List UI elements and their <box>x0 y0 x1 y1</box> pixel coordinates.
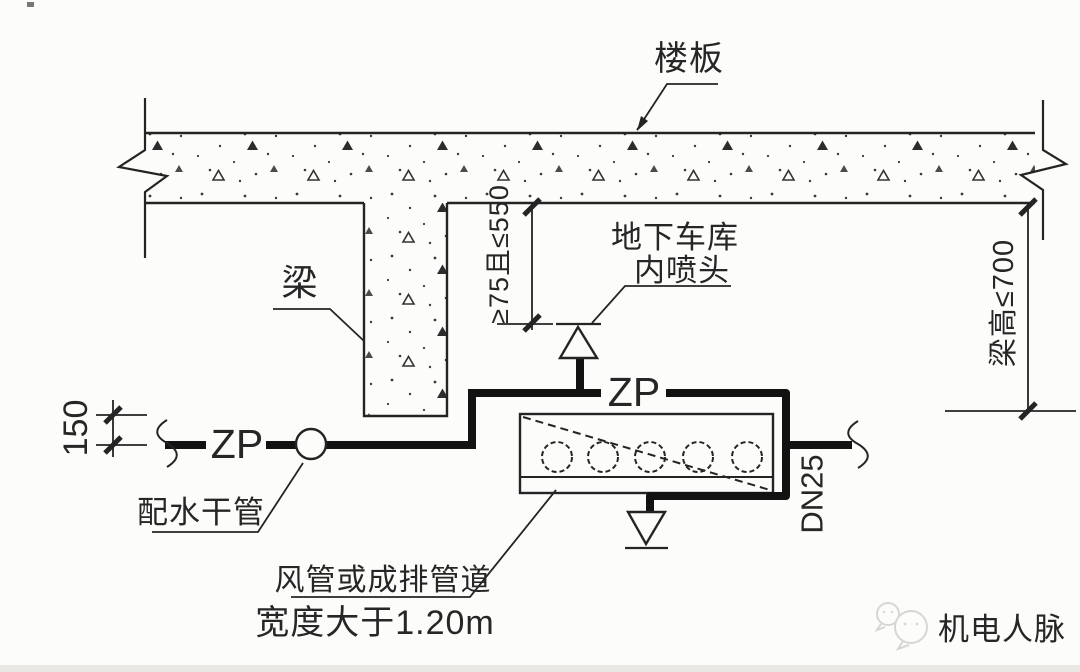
beam <box>364 203 447 416</box>
scan-speck <box>27 2 34 7</box>
slab-leader-arrow <box>637 116 648 131</box>
wechat-bubbles-icon <box>877 603 927 649</box>
slab-leader <box>637 84 718 130</box>
pendent-sprinkler-head <box>625 512 668 548</box>
distribution-main-label: 配水干管 <box>137 495 265 530</box>
drawing-canvas: 楼板 梁 地下车库 内喷头 配水干管 风管或成排管道 宽度大于1.20m ZP … <box>0 0 1080 672</box>
slab-label: 楼板 <box>654 40 724 78</box>
watermark-text: 机电人脉 <box>938 612 1066 647</box>
duct-note-line2: 宽度大于1.20m <box>255 604 495 642</box>
beam-leader <box>273 309 364 341</box>
installation-detail-diagram: 楼板 梁 地下车库 内喷头 配水干管 风管或成排管道 宽度大于1.20m ZP … <box>0 0 1080 672</box>
pipe-code-top: ZP <box>608 369 660 415</box>
beam-label: 梁 <box>281 262 318 303</box>
dimension-deflector-text: ≥75且≤550 <box>484 184 514 324</box>
dimension-beam-height-text: 梁高≤700 <box>987 239 1020 367</box>
duct <box>520 414 773 493</box>
floor-slab <box>119 98 1066 258</box>
garage-sprinkler-label-line2: 内喷头 <box>634 253 730 288</box>
watermark: 机电人脉 <box>877 603 1066 649</box>
branch-pipe-size-text: DN25 <box>795 454 830 533</box>
riser-fitting-circle <box>296 429 326 459</box>
sprinkler-leader <box>592 286 731 323</box>
upright-sprinkler-head <box>556 324 601 358</box>
dimension-150 <box>96 400 147 457</box>
garage-sprinkler-label-line1: 地下车库 <box>611 220 739 255</box>
bottom-edge-strip <box>0 665 1080 672</box>
duct-note-line1: 风管或成排管道 <box>275 564 492 597</box>
dimension-150-text: 150 <box>57 400 95 457</box>
pipe-code-left: ZP <box>211 421 263 467</box>
